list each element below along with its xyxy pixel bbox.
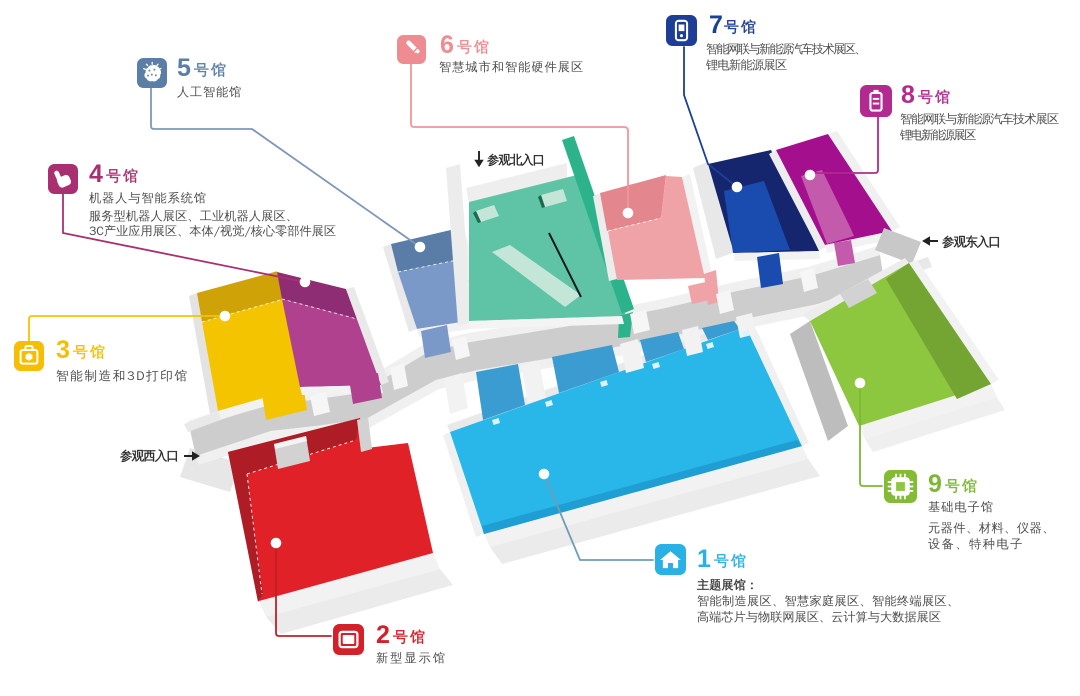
svg-text:9: 9 — [928, 470, 942, 498]
svg-text:8: 8 — [901, 81, 915, 109]
svg-text:2: 2 — [376, 621, 390, 649]
svg-text:3: 3 — [56, 336, 70, 364]
svg-text:5: 5 — [177, 54, 191, 82]
svg-text:1: 1 — [697, 545, 711, 573]
svg-text:4: 4 — [89, 160, 103, 188]
svg-text:7: 7 — [709, 11, 723, 39]
svg-text:6: 6 — [440, 31, 454, 59]
